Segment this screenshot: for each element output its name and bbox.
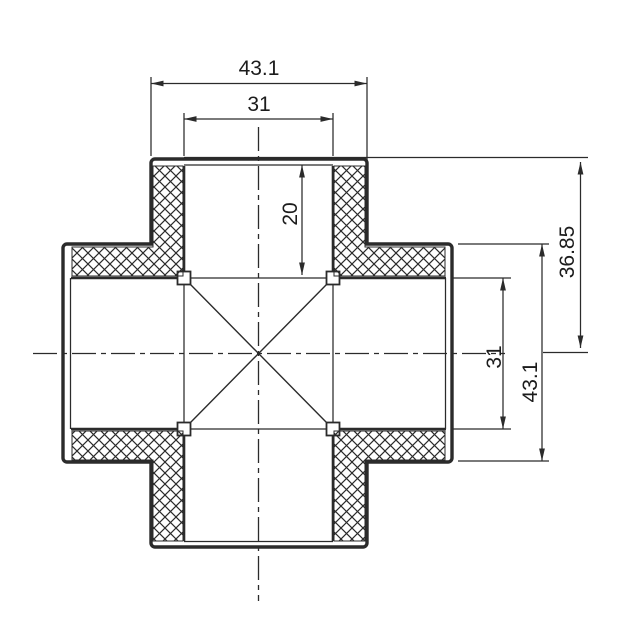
- dimension-socket-depth: 20: [279, 165, 302, 275]
- dim-label-socket-depth: 20: [279, 202, 302, 225]
- drawing-canvas: 43.1 31 20 36.85 43.1 31: [0, 0, 630, 630]
- dim-label-side-inner: 31: [483, 345, 506, 368]
- hatch-top-right: [334, 166, 445, 276]
- dim-label-side-outer: 43.1: [519, 362, 542, 403]
- technical-drawing: 43.1 31 20 36.85 43.1 31: [0, 0, 630, 630]
- dim-label-face-to-center: 36.85: [556, 226, 579, 279]
- hatch-bottom-left: [72, 431, 183, 541]
- hatch-top-left: [72, 166, 183, 276]
- hatch-bottom-right: [334, 431, 445, 541]
- dim-label-top-outer: 43.1: [239, 57, 280, 80]
- dim-label-top-inner: 31: [247, 93, 270, 116]
